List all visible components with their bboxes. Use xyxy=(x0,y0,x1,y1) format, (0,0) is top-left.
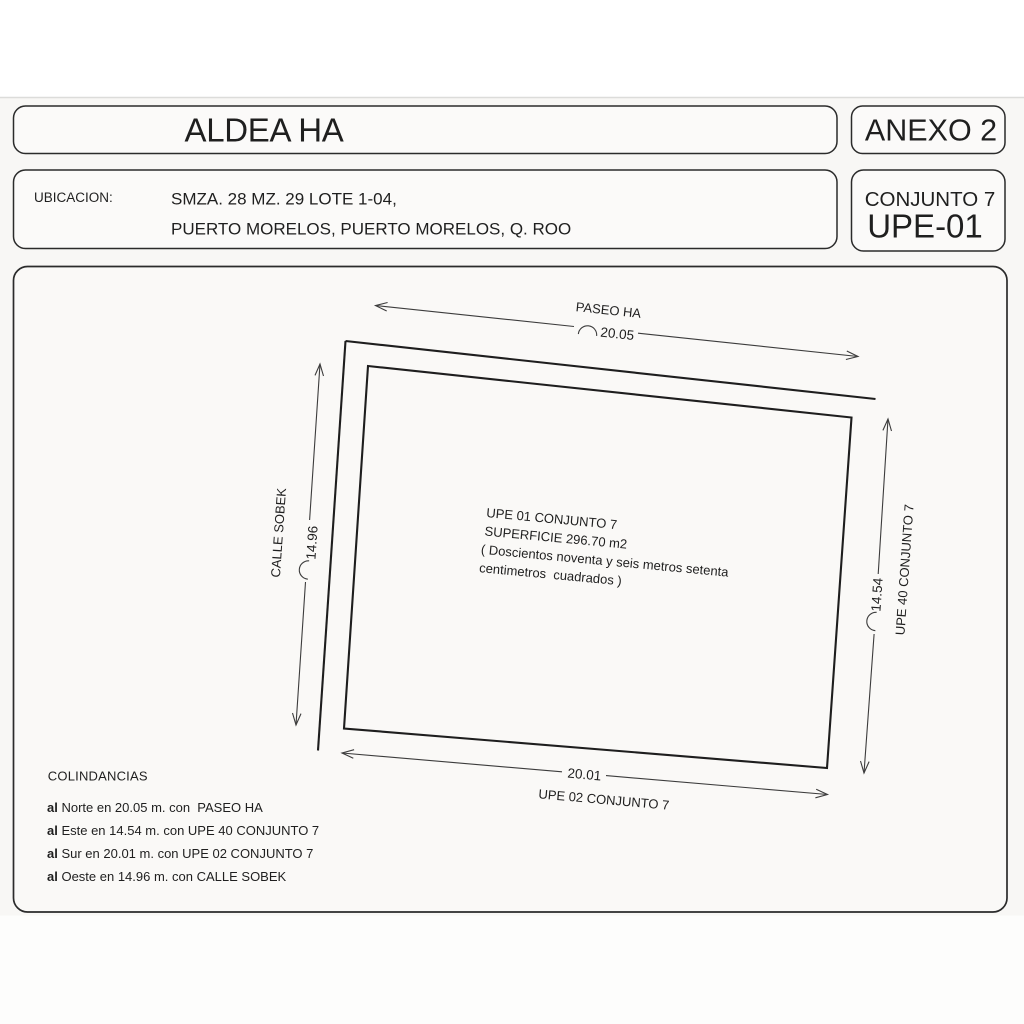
svg-text:ANEXO 2: ANEXO 2 xyxy=(865,114,997,148)
svg-text:UPE-01: UPE-01 xyxy=(867,208,983,245)
svg-text:PUERTO MORELOS, PUERTO MORELOS: PUERTO MORELOS, PUERTO MORELOS, Q. ROO xyxy=(171,220,571,239)
svg-text:al Este en 14.54 m. con UPE 40: al Este en 14.54 m. con UPE 40 CONJUNTO … xyxy=(47,823,319,838)
svg-text:SMZA. 28 MZ. 29 LOTE 1-04,: SMZA. 28 MZ. 29 LOTE 1-04, xyxy=(171,190,397,209)
svg-text:ALDEA HA: ALDEA HA xyxy=(184,112,343,149)
svg-text:al Oeste en 14.96 m. con CALLE: al Oeste en 14.96 m. con CALLE SOBEK xyxy=(47,869,287,884)
svg-text:al Norte en 20.05 m. con PASE: al Norte en 20.05 m. con PASEO HA xyxy=(47,800,263,815)
svg-text:14.54: 14.54 xyxy=(868,577,885,612)
svg-text:20.01: 20.01 xyxy=(567,766,602,784)
svg-text:COLINDANCIAS: COLINDANCIAS xyxy=(48,769,148,784)
svg-text:UBICACION:: UBICACION: xyxy=(34,190,113,205)
svg-text:14.96: 14.96 xyxy=(303,525,320,560)
svg-text:al Sur en 20.01 m. con UPE 02: al Sur en 20.01 m. con UPE 02 CONJUNTO 7 xyxy=(47,846,313,861)
